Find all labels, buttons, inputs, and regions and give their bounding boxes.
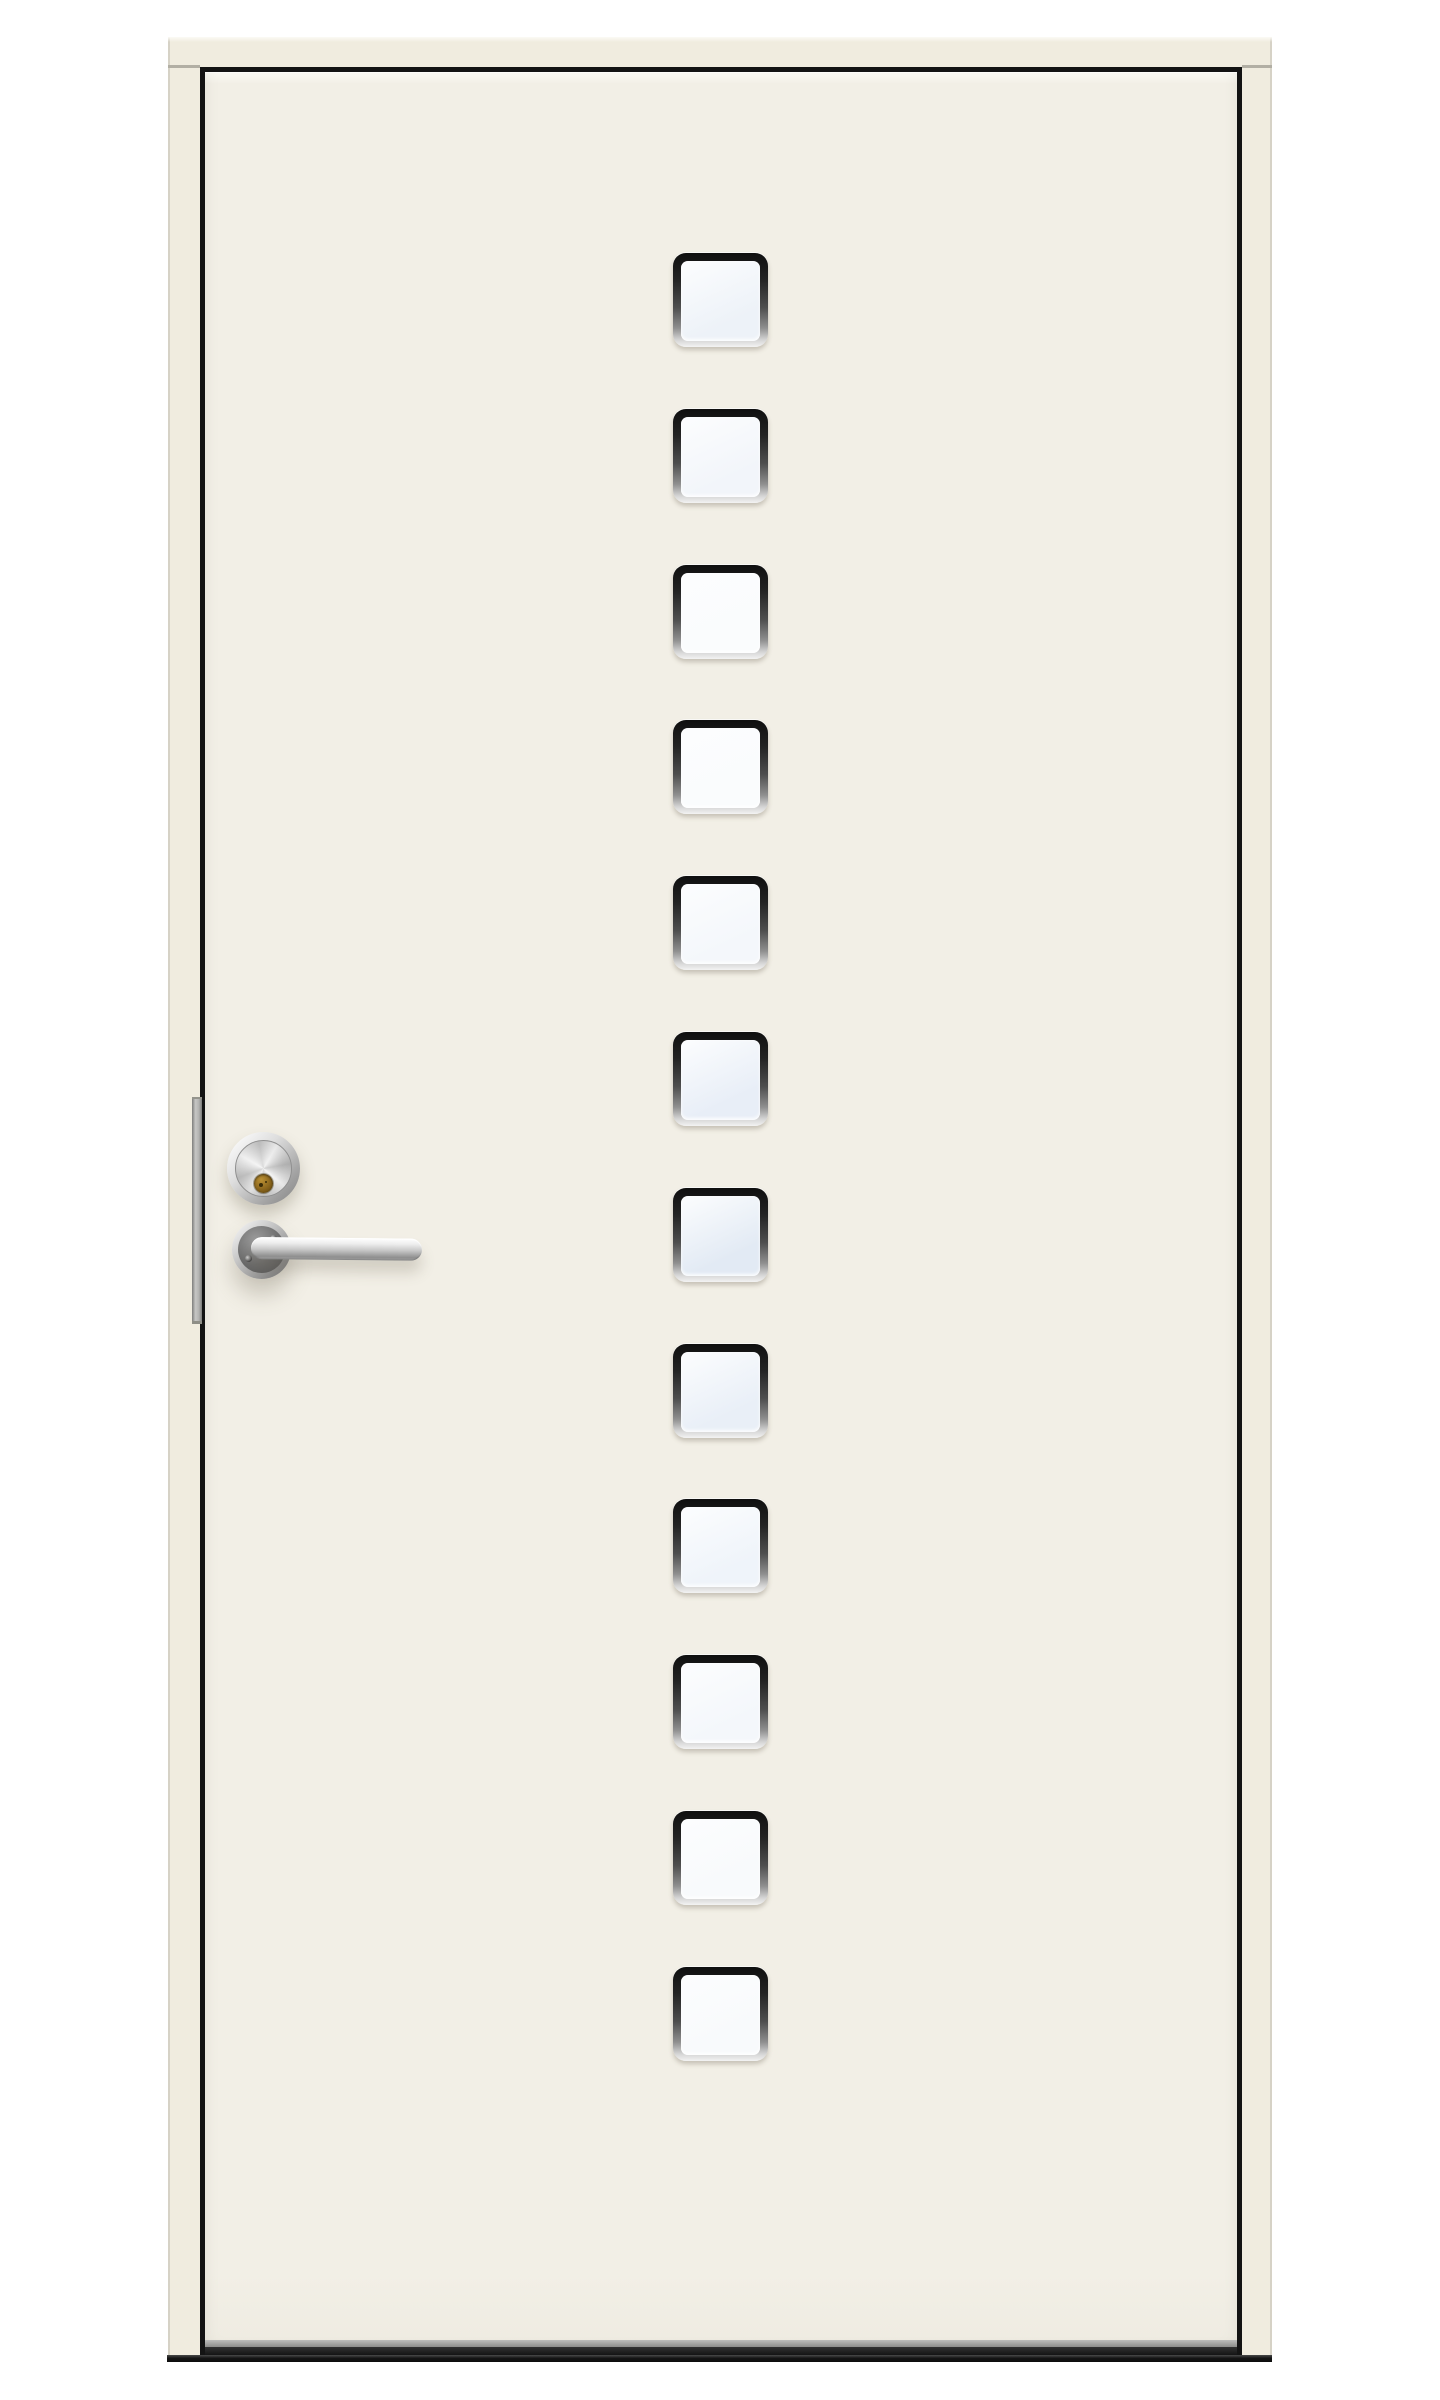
window-1 (673, 253, 768, 347)
window-5 (673, 876, 768, 970)
security-strip (192, 1097, 202, 1324)
window-glass (681, 573, 760, 653)
door-product-photo (0, 0, 1440, 2400)
door-handle-lever (251, 1237, 422, 1261)
frame-joint-line-right (1242, 65, 1272, 68)
rosette-screw (245, 1255, 252, 1262)
window-glass (681, 884, 760, 964)
door-bottom-edge (205, 2340, 1237, 2347)
door-leaf (200, 67, 1242, 2355)
window-9 (673, 1499, 768, 1593)
window-11 (673, 1811, 768, 1905)
frame-joint-line-left (168, 65, 200, 68)
window-8 (673, 1344, 768, 1438)
window-7 (673, 1188, 768, 1282)
window-6 (673, 1032, 768, 1126)
window-glass (681, 1663, 760, 1743)
door-bottom-seal (205, 2347, 1237, 2355)
window-glass (681, 261, 760, 341)
window-4 (673, 720, 768, 814)
lock-cylinder (227, 1132, 300, 1205)
window-glass (681, 1352, 760, 1432)
door-face (205, 72, 1237, 2340)
window-glass (681, 1196, 760, 1276)
window-glass (681, 1975, 760, 2055)
lock-cylinder-face (235, 1140, 292, 1197)
window-glass (681, 728, 760, 808)
window-3 (673, 565, 768, 659)
window-glass (681, 417, 760, 497)
window-glass (681, 1507, 760, 1587)
keyhole-brass (254, 1174, 273, 1193)
window-glass (681, 1040, 760, 1120)
threshold-bar (167, 2355, 1272, 2362)
window-12 (673, 1967, 768, 2061)
window-2 (673, 409, 768, 503)
window-glass (681, 1819, 760, 1899)
window-10 (673, 1655, 768, 1749)
